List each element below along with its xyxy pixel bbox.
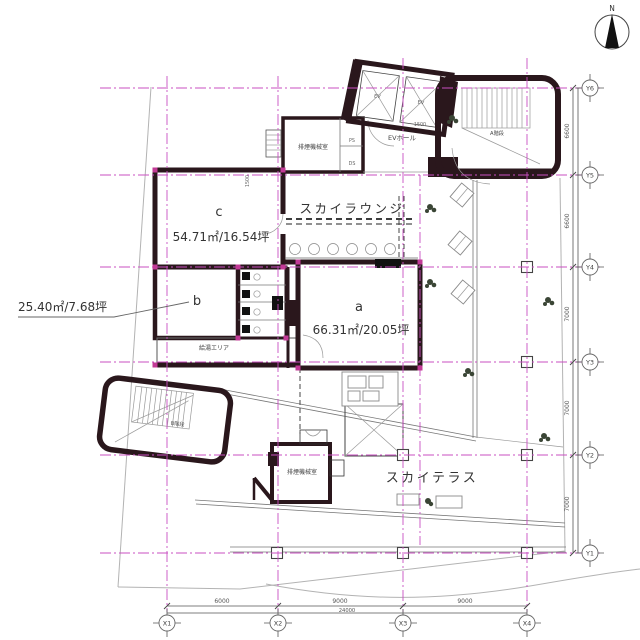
- grid-bubble-label: X1: [163, 620, 172, 628]
- floor-plan-svg: EV EV: [0, 0, 640, 640]
- elevator-shaft-1: EV: [356, 71, 399, 122]
- room-c-dim-1500: 1500: [245, 175, 251, 187]
- skylight-opening: [345, 404, 403, 456]
- dim-x3-x4: 9000: [457, 598, 472, 605]
- dim-y4-y3: 7000: [564, 306, 571, 321]
- stair-a-treads: [462, 88, 540, 164]
- north-label: N: [609, 4, 615, 13]
- dim-x1-x2: 6000: [214, 598, 229, 605]
- grid-bubble-label: X2: [274, 620, 283, 628]
- stair-b-block: B階段: [98, 377, 232, 464]
- north-arrow: N: [595, 4, 629, 49]
- grid-bubble-label: Y4: [585, 264, 594, 272]
- grid-bubble-label: Y5: [585, 172, 594, 180]
- louver-vent: [266, 130, 281, 157]
- smoke-room-top-label: 排煙機械室: [298, 143, 328, 151]
- wc-strip: [238, 267, 286, 338]
- dim-y2-y1: 7000: [564, 496, 571, 511]
- room-a-area: 66.31㎡/20.05坪: [313, 323, 410, 337]
- dim-x2-x3: 9000: [332, 598, 347, 605]
- hot-water-area-label: 給湯エリア: [199, 344, 229, 352]
- stair-a-label: A階段: [490, 129, 504, 137]
- toilet-fixtures: [242, 272, 283, 333]
- sky-lounge-label: スカイラウンジ: [299, 201, 404, 216]
- sky-terrace-label: スカイテラス: [386, 471, 478, 486]
- dim-y5-y4: 6600: [564, 213, 571, 228]
- floor-plan: EV EV: [0, 0, 640, 640]
- ev-hall-label: EVホール: [388, 134, 417, 142]
- pipe-shaft-label: PS: [349, 138, 355, 144]
- grid-bubble-label: Y6: [585, 85, 594, 93]
- dimension-y: 6600 6600 7000 7000 7000 Y6 Y5 Y4 Y3 Y2 …: [564, 74, 604, 567]
- room-b-letter: b: [193, 294, 201, 309]
- dimension-x: 6000 9000 9000 24000 X1 X2 X3 X4: [153, 598, 541, 637]
- room-c-area: 54.71㎡/16.54坪: [173, 230, 270, 244]
- ev-dim-1500: 1500: [414, 122, 426, 128]
- duct-shaft-label: DS: [349, 161, 356, 167]
- dim-x-total: 24000: [339, 608, 356, 614]
- grid-bubble-label: Y2: [585, 452, 594, 460]
- room-a-letter: a: [355, 300, 363, 315]
- grid-bubble-label: X4: [523, 620, 532, 628]
- grid-bubble-label: X3: [399, 620, 408, 628]
- dim-y6-y5: 6600: [564, 123, 571, 138]
- smoke-room-bottom-label: 排煙機械室: [287, 468, 317, 476]
- site-boundary: [118, 87, 640, 597]
- grid-bubble-label: Y3: [585, 359, 594, 367]
- grid-bubble-label: Y1: [585, 550, 594, 558]
- room-b-area: 25.40㎡/7.68坪: [18, 300, 107, 314]
- sofa-group: [342, 372, 398, 406]
- room-c-letter: c: [215, 205, 222, 220]
- smoke-machine-room-bottom: [254, 430, 344, 502]
- grid-bubbles-y: Y6 Y5 Y4 Y3 Y2 Y1: [576, 74, 604, 567]
- dim-y3-y2: 7000: [564, 400, 571, 415]
- stair-b-treads: [115, 384, 194, 450]
